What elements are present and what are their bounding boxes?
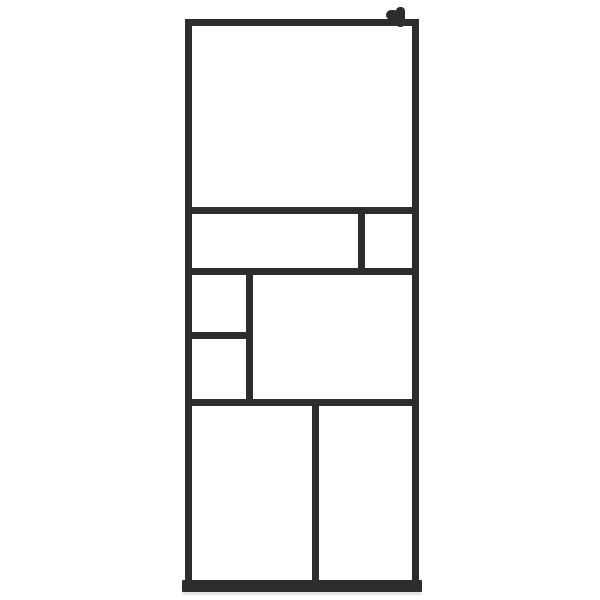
frame-divider-vertical-bottom <box>312 399 319 580</box>
frame-divider-horizontal-1 <box>192 207 412 214</box>
glass-pane-bottom-left <box>192 406 312 580</box>
floor-shadow <box>182 592 422 595</box>
bottom-floor-rail <box>182 580 422 592</box>
glass-pane-top-large <box>192 26 412 207</box>
product-image-canvas <box>0 0 600 600</box>
frame-divider-horizontal-2 <box>192 268 412 275</box>
wall-bracket-arm-icon <box>386 10 399 20</box>
glass-pane-row2-right-small <box>365 214 412 268</box>
glass-pane-row3-left-lower <box>192 339 246 399</box>
glass-pane-row3-left-upper <box>192 275 246 332</box>
frame-divider-vertical-row2 <box>358 207 365 275</box>
glass-pane-row3-main <box>253 275 412 399</box>
frame-divider-horizontal-3 <box>192 399 412 406</box>
frame-divider-vertical-row3 <box>246 268 253 406</box>
glass-pane-row2-wide <box>192 214 358 268</box>
glass-pane-bottom-right <box>319 406 412 580</box>
frame-divider-horizontal-left-mini <box>192 332 253 339</box>
